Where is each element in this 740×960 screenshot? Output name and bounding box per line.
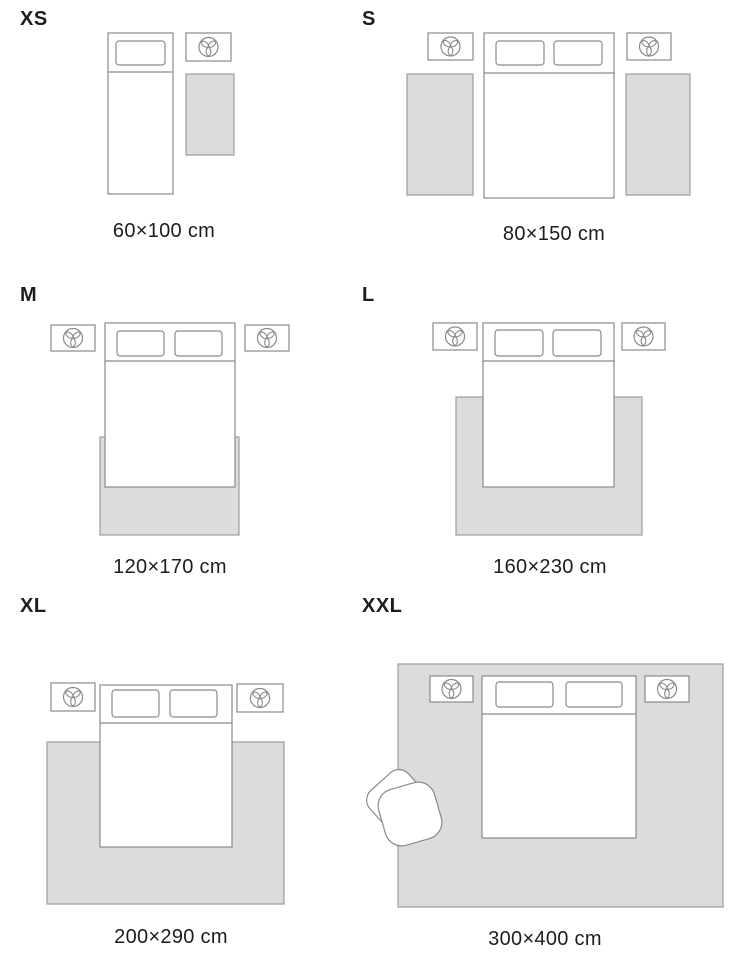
size-label-s: S — [362, 8, 376, 31]
plant-icon — [441, 37, 460, 56]
pillow — [554, 41, 602, 65]
pillow — [117, 331, 164, 356]
dimension-label-m: 120×170 cm — [113, 556, 227, 579]
pillow — [175, 331, 222, 356]
plant-icon — [442, 680, 461, 699]
size-label-xl: XL — [20, 595, 47, 618]
plant-icon — [658, 680, 677, 699]
pillow — [112, 690, 159, 717]
rug-runner-left — [407, 74, 473, 195]
dimension-label-l: 160×230 cm — [493, 556, 607, 579]
plant-icon — [64, 329, 83, 348]
diagram-xxl — [361, 664, 723, 907]
rug-size-guide: XS S M L XL XXL 60×100 cm 80×150 cm 120×… — [0, 0, 740, 960]
size-label-m: M — [20, 284, 37, 307]
pillow — [116, 41, 165, 65]
size-label-xxl: XXL — [362, 595, 402, 618]
plant-icon — [640, 37, 659, 56]
pillow — [496, 41, 544, 65]
dimension-label-xl: 200×290 cm — [114, 926, 228, 949]
plant-icon — [634, 327, 653, 346]
pillow — [566, 682, 622, 707]
diagram-l — [433, 323, 665, 535]
size-label-l: L — [362, 284, 375, 307]
dimension-label-xxl: 300×400 cm — [488, 928, 602, 951]
diagram-xs — [108, 33, 234, 194]
plant-icon — [258, 329, 277, 348]
rug — [186, 74, 234, 155]
size-label-xs: XS — [20, 8, 48, 31]
plant-icon — [446, 327, 465, 346]
pillow — [496, 682, 553, 707]
diagram-s — [407, 33, 690, 198]
pillow — [553, 330, 601, 356]
pillow — [495, 330, 543, 356]
size-guide-drawing — [0, 0, 740, 960]
pillow — [170, 690, 217, 717]
diagram-xl — [47, 683, 284, 904]
rug-runner-right — [626, 74, 690, 195]
dimension-label-xs: 60×100 cm — [113, 220, 215, 243]
plant-icon — [64, 688, 83, 707]
diagram-m — [51, 323, 289, 535]
dimension-label-s: 80×150 cm — [503, 223, 605, 246]
plant-icon — [251, 689, 270, 708]
plant-icon — [199, 38, 218, 57]
